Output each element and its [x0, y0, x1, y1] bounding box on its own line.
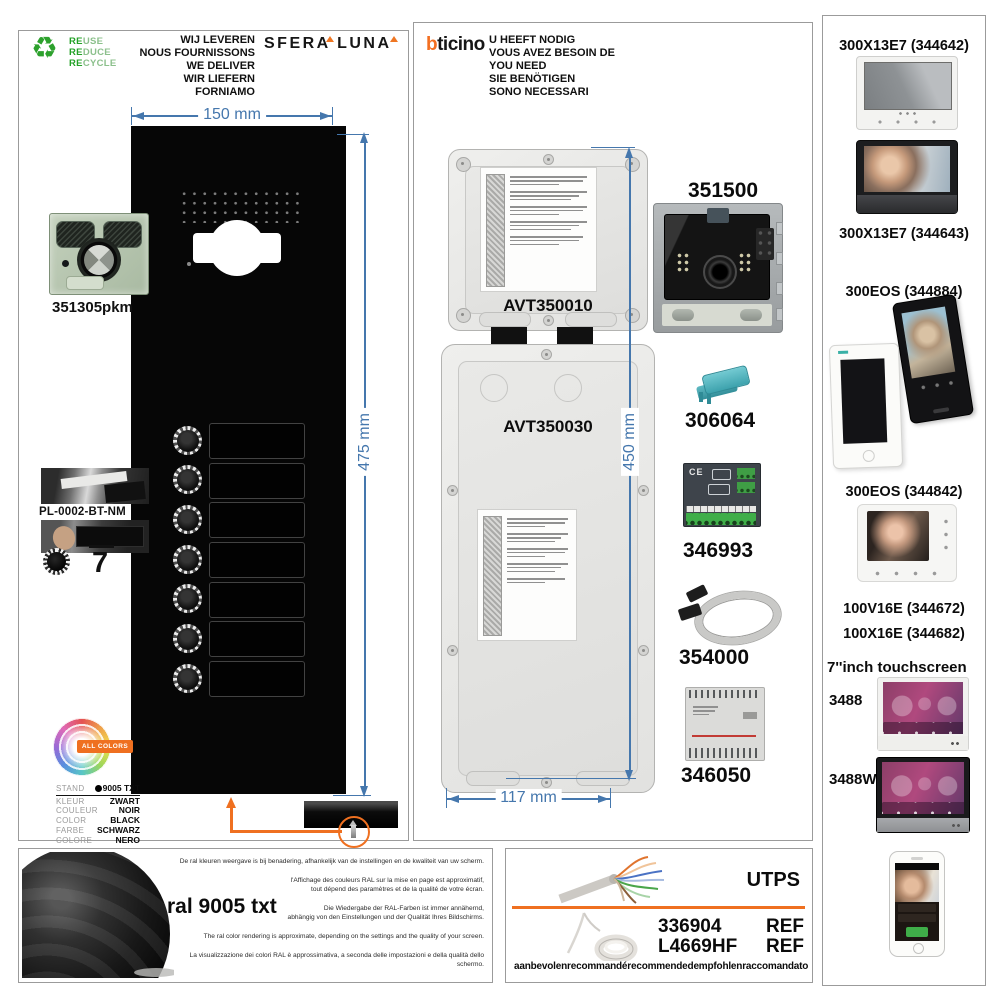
ref-label: REF	[766, 937, 804, 957]
recycle-text: REUSE REDUCE RECYCLE	[69, 36, 117, 69]
name-plate	[209, 423, 305, 459]
installation-figure	[486, 174, 505, 287]
caller-photo	[895, 870, 939, 902]
box-ref-label: AVT350010	[449, 296, 647, 316]
name-plate	[209, 621, 305, 657]
extension-line	[333, 795, 371, 796]
extension-line	[337, 134, 369, 135]
part-ref-label: 354000	[679, 646, 749, 670]
box-height-dimension: 450 mm	[620, 147, 640, 781]
camera-module-ref: 351305pkm	[52, 299, 133, 316]
name-plate	[209, 502, 305, 538]
deliver-line: WE DELIVER	[119, 60, 255, 73]
disclaimer-line: La visualizzazione dei colori RAL è appr…	[169, 951, 484, 969]
name-plate	[209, 661, 305, 697]
contact-pads	[676, 252, 690, 272]
detail-highlight-circle	[338, 816, 370, 848]
monitor-screen	[864, 146, 950, 192]
interface-pcb-image: CE	[683, 463, 761, 527]
pin-icon	[351, 825, 356, 838]
instruction-text	[507, 516, 571, 636]
extension-line	[506, 778, 636, 779]
call-button	[173, 624, 202, 653]
recommended-word: recommandé	[567, 961, 627, 972]
side-notch	[776, 282, 783, 295]
box-slot	[479, 312, 531, 327]
twisted-pair-coil-image	[550, 911, 655, 961]
orange-arrow-line	[230, 830, 342, 833]
nameplate-holder	[104, 481, 146, 503]
nameplate-kit-ref: PL-0002-BT-NM	[39, 506, 126, 518]
sfera-luna-logo: SFERA LUNA	[264, 35, 404, 53]
disclaimer-line: tout dépend des paramètres et de la qual…	[169, 885, 484, 894]
recycle-line: REDUCE	[69, 47, 117, 58]
instruction-label	[477, 509, 577, 641]
you-need-text: U HEEFT NODIG VOUS AVEZ BESOIN DE YOU NE…	[489, 34, 615, 99]
installation-figure	[483, 516, 502, 636]
status-led	[187, 262, 191, 266]
handset-speaker	[933, 407, 949, 413]
color-disclaimer-text: De ral kleuren weergave is bij benaderin…	[169, 857, 484, 969]
touchscreen-dock	[883, 722, 963, 734]
call-button	[173, 664, 202, 693]
recommended-word: aanbevolen	[514, 961, 567, 972]
terminal-row	[689, 690, 759, 698]
color-row: COLORENERO	[56, 836, 140, 846]
name-plate	[209, 542, 305, 578]
brand-plate	[743, 712, 757, 719]
box-width-dimension: 117 mm	[446, 786, 611, 810]
brand-mark	[838, 351, 848, 354]
terminal-block	[737, 482, 755, 493]
app-title-bar	[895, 863, 939, 870]
deliver-line: WIR LIEFERN	[119, 73, 255, 86]
camera-window	[209, 220, 265, 276]
deliver-line: FORNIAMO	[119, 86, 255, 99]
recommended-word: recommended	[627, 961, 693, 972]
phone-earpiece	[911, 857, 923, 860]
pcb-marking	[708, 484, 730, 495]
disclaimer-line: abhängig von den Einstellungen und der Q…	[169, 913, 484, 922]
call-button	[173, 584, 202, 613]
brand-accent-mark	[390, 36, 398, 42]
module-chin	[662, 304, 772, 326]
pcb-marking	[712, 469, 731, 480]
part-ref-label: 351500	[688, 179, 758, 203]
recycle-line: RECYCLE	[69, 58, 117, 69]
unit-ref-label: 100V16E (344672)	[823, 601, 985, 617]
need-line: VOUS AVEZ BESOIN DE	[489, 47, 615, 60]
lens-cover	[707, 208, 729, 223]
recommended-word: raccomandato	[742, 961, 808, 972]
all-colors-badge: ALL COLORS	[77, 740, 133, 753]
handset-screen	[901, 306, 955, 378]
cable-connector	[686, 584, 709, 603]
camera-knob	[84, 245, 114, 275]
recycle-icon: ♻	[31, 31, 58, 67]
button-sample-image	[43, 548, 70, 575]
unit-ref-label: 3488	[829, 692, 862, 709]
ribbon-cable-image	[679, 586, 773, 638]
disclaimer-line: De ral kleuren weergave is bij benaderin…	[169, 857, 484, 866]
contact-pads	[738, 252, 752, 272]
unit-ref-label: 300EOS (344884)	[823, 284, 985, 300]
smartphone-app-image	[889, 851, 945, 957]
indoor-units-panel: 300X13E7 (344642) 300X13E7 (344643) 300E…	[822, 15, 986, 986]
phone-screen	[895, 863, 939, 941]
name-plate	[209, 582, 305, 618]
part-ref-label: 306064	[685, 409, 755, 433]
side-notch	[776, 222, 783, 235]
bticino-logo: bticino	[426, 34, 485, 56]
color-dot	[95, 785, 102, 792]
disclaimer-line: Die Wiedergabe der RAL-Farben ist immer …	[169, 904, 484, 913]
indicator-leds	[951, 824, 961, 827]
screw	[447, 645, 458, 656]
name-plate	[209, 463, 305, 499]
utp-cable-image	[552, 853, 682, 905]
monitor-buttons	[897, 112, 917, 115]
cable-refs: 336904 REF L4669HF REF	[658, 917, 804, 957]
answer-button	[906, 927, 928, 937]
unit-ref-label: 300EOS (344842)	[823, 484, 985, 500]
cable-ref-row: 336904 REF	[658, 917, 804, 937]
color-row: STAND 9005 TXT	[56, 784, 140, 796]
camera-speaker-module-image	[653, 203, 783, 333]
microphone-hole	[62, 260, 69, 267]
box-slot	[565, 312, 617, 327]
label-slot	[66, 276, 104, 290]
door-station-panel	[131, 126, 346, 794]
screw	[456, 157, 471, 172]
side-notch	[776, 308, 783, 321]
box-height-dimension-label: 450 mm	[621, 408, 639, 476]
call-button	[173, 505, 202, 534]
height-dimension-label: 475 mm	[356, 408, 374, 476]
need-line: YOU NEED	[489, 60, 615, 73]
touchscreen-title: 7''inch touchscreen	[827, 659, 967, 676]
screw	[543, 315, 554, 326]
color-table: STAND 9005 TXT KLEURZWART COULEURNOIR CO…	[56, 784, 140, 845]
terminal-row	[689, 748, 759, 758]
handset-keys	[916, 380, 956, 391]
cable-knockout	[554, 374, 582, 402]
you-need-panel: bticino U HEEFT NODIG VOUS AVEZ BESOIN D…	[413, 22, 813, 841]
height-dimension: 475 mm	[355, 132, 375, 797]
camera-module-image	[49, 213, 149, 295]
sphere	[22, 852, 170, 978]
monitor-buttons	[868, 571, 946, 576]
recycle-line: REUSE	[69, 36, 117, 47]
side-notch	[776, 252, 783, 265]
unit-ref-label: 3488W	[829, 771, 877, 788]
cable-knockout	[480, 374, 508, 402]
nameplate-kit-photo	[41, 468, 149, 504]
monitor-screen	[867, 511, 929, 561]
call-button	[173, 545, 202, 574]
instruction-text	[510, 174, 591, 287]
ral-sample-sphere-image	[22, 852, 174, 978]
ref-label: REF	[766, 917, 804, 937]
disclaimer-line: l'Affichage des couleurs RAL sur la mise…	[169, 876, 484, 885]
deliver-line: WIJ LEVEREN	[119, 34, 255, 47]
monitor-icons	[944, 515, 948, 555]
disclaimer-line: The ral color rendering is approximate, …	[169, 932, 484, 941]
extension-line	[591, 147, 635, 148]
orange-arrow-line	[230, 807, 233, 832]
video-monitor-compact-image	[857, 504, 957, 582]
cable-ref-row: L4669HF REF	[658, 937, 804, 957]
app-list-row	[898, 904, 936, 912]
unit-ref-label: 300X13E7 (344642)	[823, 38, 985, 54]
ral-color-panel: ral 9005 txt De ral kleuren weergave is …	[18, 848, 493, 983]
call-button	[173, 426, 202, 455]
touchscreen-dock	[882, 802, 964, 814]
touchscreen-black-image	[876, 757, 970, 833]
cable-type-label: UTPS	[747, 869, 800, 892]
power-supply-image	[685, 687, 765, 761]
speaker-grille	[177, 187, 299, 223]
mounting-box-top-image: AVT350010	[448, 149, 648, 331]
deliver-line: NOUS FOURNISSONS	[119, 47, 255, 60]
monitor-buttons	[871, 120, 943, 124]
recommended-word: empfohlen	[693, 961, 742, 972]
screw	[543, 154, 554, 165]
unit-ref-label: 300X13E7 (344643)	[823, 226, 985, 242]
width-dimension-label: 150 mm	[198, 106, 266, 124]
brand-accent-mark	[326, 36, 334, 42]
ce-mark: CE	[689, 467, 704, 477]
part-ref-label: 346050	[681, 764, 751, 788]
video-monitor-white-image	[856, 56, 958, 130]
home-button	[913, 943, 924, 954]
touchscreen-white-image	[877, 677, 969, 751]
screw	[541, 349, 552, 360]
product-sheet: ♻ REUSE REDUCE RECYCLE WIJ LEVEREN NOUS …	[0, 0, 1000, 997]
part-ref-label: 346993	[683, 539, 753, 563]
box-width-dimension-label: 117 mm	[495, 789, 562, 807]
app-list-row	[898, 914, 936, 922]
home-button	[863, 450, 875, 462]
instruction-label	[480, 167, 597, 292]
terminal-numbers	[686, 506, 756, 512]
connector-image	[689, 364, 751, 406]
ref-number: L4669HF	[658, 937, 737, 957]
device-markings	[693, 704, 719, 718]
recommended-text: aanbevolen recommandé recommended empfoh…	[514, 961, 804, 972]
need-line: SIE BENÖTIGEN	[489, 73, 615, 86]
terminal-block	[756, 228, 774, 260]
cable-recommendation-panel: UTPS 336904 REF L4669HF REF aanbevolen r…	[505, 848, 813, 983]
nameplate-window	[76, 526, 144, 547]
cable-loop	[692, 586, 784, 649]
video-monitor-black-image	[856, 140, 958, 214]
camera-lens	[703, 255, 737, 289]
handset-black-image	[892, 294, 974, 425]
handset-white-image	[829, 343, 903, 469]
delivered-items-panel: ♻ REUSE REDUCE RECYCLE WIJ LEVEREN NOUS …	[18, 30, 409, 841]
terminal-strip	[686, 513, 756, 525]
connector-leg	[699, 392, 703, 402]
handset-screen	[840, 358, 887, 443]
red-line	[692, 735, 756, 737]
unit-ref-label: 100X16E (344682)	[823, 626, 985, 642]
need-line: U HEEFT NODIG	[489, 34, 615, 47]
indicator-leds	[950, 742, 960, 745]
we-deliver-text: WIJ LEVEREN NOUS FOURNISSONS WE DELIVER …	[119, 34, 255, 99]
screw	[447, 485, 458, 496]
orange-divider	[512, 906, 805, 909]
monitor-button-strip	[857, 195, 957, 213]
need-line: SONO NECESSARI	[489, 86, 615, 99]
button-count: 7	[92, 547, 108, 580]
terminal-block	[737, 468, 755, 479]
call-button	[173, 465, 202, 494]
ref-number: 336904	[658, 917, 721, 937]
sphere-base	[134, 968, 174, 977]
connector-leg	[707, 394, 711, 404]
monitor-screen	[864, 62, 952, 110]
